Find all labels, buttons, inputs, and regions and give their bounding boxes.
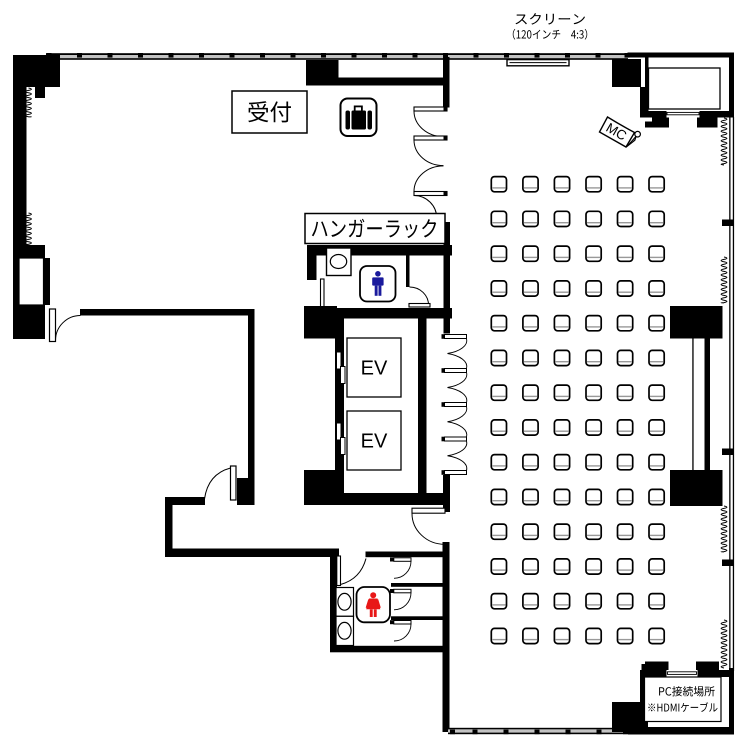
svg-text:EV: EV (361, 431, 388, 453)
svg-text:EV: EV (361, 358, 388, 380)
